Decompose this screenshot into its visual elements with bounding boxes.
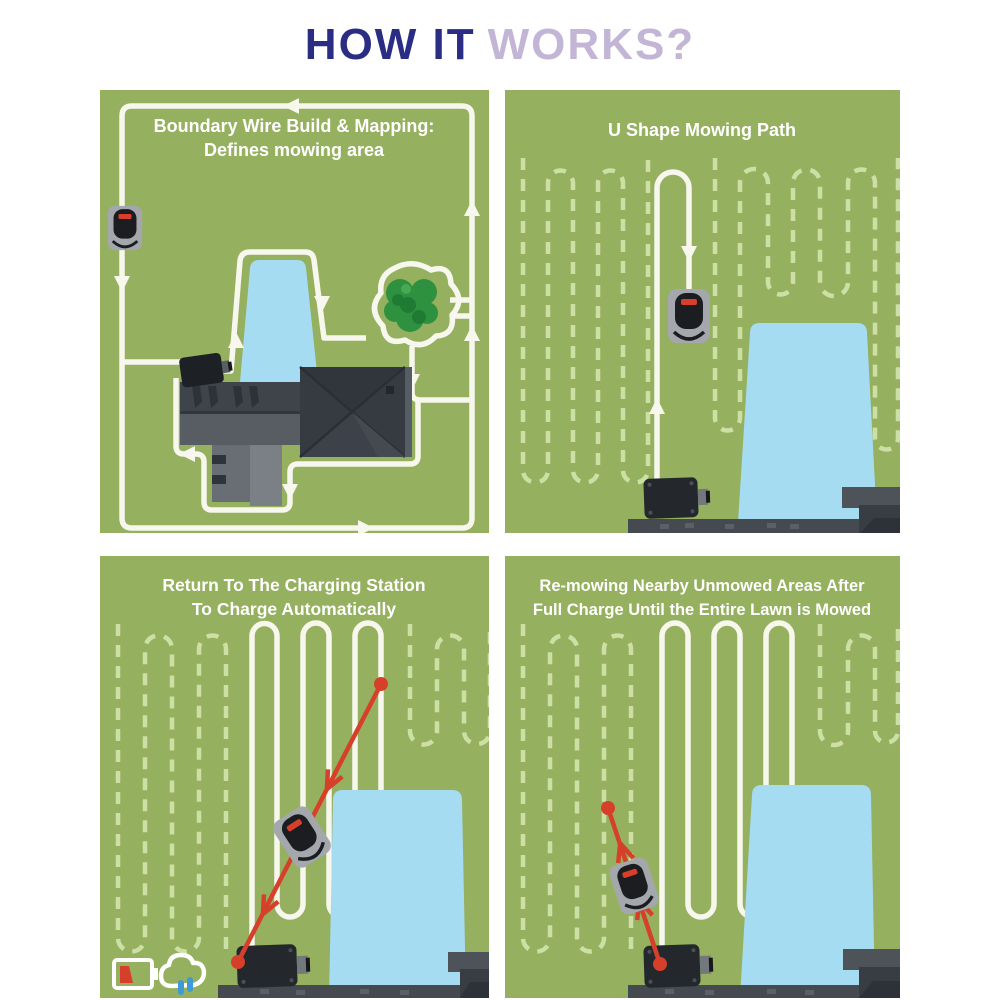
route-end-dot	[231, 955, 245, 969]
panel-remowing: Re-mowing Nearby Unmowed Areas After Ful…	[505, 556, 900, 998]
return-illustration: Return To The Charging Station To Charge…	[100, 556, 489, 998]
pool	[329, 790, 466, 998]
panel-return-to-station: Return To The Charging Station To Charge…	[100, 556, 489, 998]
route-target-dot	[601, 801, 615, 815]
route-start-dot	[653, 957, 667, 971]
boundary-mapping-illustration: Boundary Wire Build & Mapping: Defines m…	[100, 90, 489, 533]
panel-title-line1: Boundary Wire Build & Mapping:	[154, 116, 435, 136]
panel-title-line2: Full Charge Until the Entire Lawn is Mow…	[533, 601, 871, 619]
panel-title-line1: Return To The Charging Station	[162, 575, 425, 595]
panel-title-line2: Defines mowing area	[204, 140, 385, 160]
panel-ushape-path: U Shape Mowing Path	[505, 90, 900, 533]
route-start-dot	[374, 677, 388, 691]
page-title: HOW ITWORKS?	[0, 20, 1000, 70]
remow-illustration: Re-mowing Nearby Unmowed Areas After Ful…	[505, 556, 900, 998]
panel-title: U Shape Mowing Path	[608, 120, 796, 140]
robot-mower-icon	[108, 206, 142, 250]
panel-title-line2: To Charge Automatically	[192, 599, 396, 619]
ushape-illustration: U Shape Mowing Path	[505, 90, 900, 533]
page-title-accent: HOW IT	[305, 20, 476, 69]
page-title-rest: WORKS?	[488, 20, 696, 69]
panel-title-line1: Re-mowing Nearby Unmowed Areas After	[539, 577, 865, 595]
pool	[240, 260, 318, 382]
robot-mower-icon	[668, 289, 710, 343]
panel-boundary-mapping: Boundary Wire Build & Mapping: Defines m…	[100, 90, 489, 533]
